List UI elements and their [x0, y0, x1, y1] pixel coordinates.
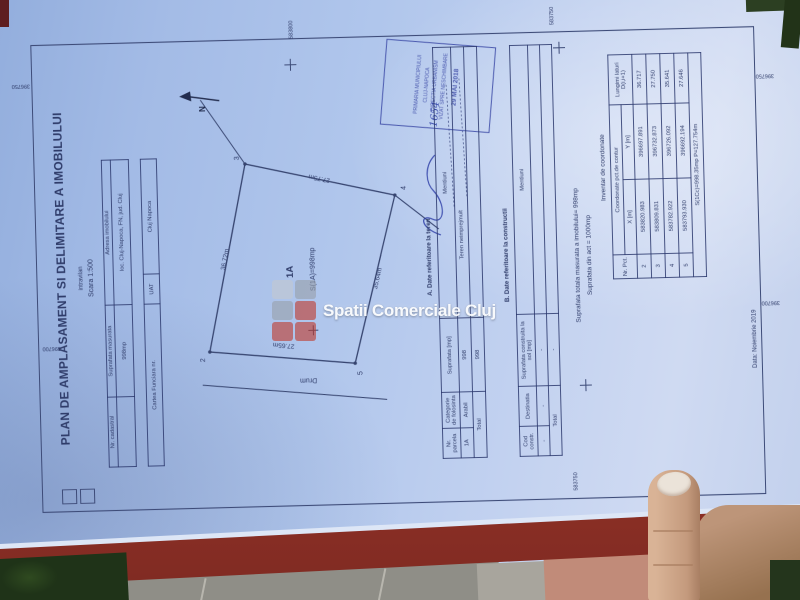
table-cell: Lungimi laturi D(i,i+1) [608, 54, 633, 105]
table-cell: 35.641 [660, 53, 675, 103]
table-cell: Destinatia [518, 386, 537, 426]
parcel-id-label: 1A [285, 266, 296, 278]
logo-square [272, 280, 293, 299]
table-cell: Cluj Napoca [140, 159, 159, 274]
table-cell: Suprafata construita la sol [mp] [516, 314, 536, 386]
table-cell: UAT [143, 274, 160, 304]
finger-crease [653, 564, 693, 566]
stamp-line: PRIMARIA MUNICIPIULUI [413, 55, 424, 115]
road-label: Drum [300, 375, 317, 383]
coordinates-table: Nr. Pct. Coordonate pct.de contur Lungim… [607, 52, 707, 279]
table-cell: 2 [637, 254, 652, 278]
table-cell: Total [548, 385, 562, 455]
vertex-label: 2 [200, 358, 208, 362]
grid-label: 583750 [549, 7, 556, 26]
north-arrow-icon [179, 91, 219, 102]
watermark-logo-icon [272, 280, 316, 341]
table-cell: - [537, 426, 550, 456]
table-cell: 3 [651, 254, 666, 278]
vertex-label: 3 [234, 156, 242, 160]
table-cell: - [536, 386, 549, 426]
table-cell: Categorie de folosinta [442, 392, 461, 428]
table-cell: loc. Cluj-Napoca, FN, jud. Cluj [110, 160, 132, 305]
vertex-point [353, 361, 356, 364]
logo-square [295, 322, 316, 341]
grid-label: 396700 [42, 345, 61, 352]
table-cell: Nr. parcela [442, 428, 461, 458]
title-subtext: intravilan [78, 266, 85, 290]
vertex-point [208, 350, 211, 353]
foliage [781, 0, 800, 49]
table-cell: - [546, 313, 560, 385]
pavement-joint [195, 578, 206, 600]
legend-box [80, 489, 94, 503]
finger-crease [653, 530, 693, 532]
north-label: N [199, 106, 208, 112]
table-cell: Nr. Pct. [613, 254, 638, 279]
photo-of-cadastral-plan: PLAN DE AMPLASAMENT SI DELIMITARE A IMOB… [0, 0, 800, 600]
watermark: Spatii Comerciale Cluj [272, 280, 496, 341]
scale-label: Scara 1:500 [88, 259, 97, 297]
table-cell: 27.750 [646, 54, 661, 104]
background-shadow [0, 0, 9, 27]
vertex-label: 5 [358, 371, 366, 375]
logo-square [295, 280, 316, 299]
legend-box [62, 490, 76, 504]
logo-square [272, 322, 293, 341]
table-cell: Cod constr. [519, 426, 538, 456]
vertex-label: 4 [401, 186, 409, 190]
road-line [203, 380, 387, 404]
table-cell: 998mp [114, 305, 134, 397]
watermark-text: Spatii Comerciale Cluj [323, 301, 496, 321]
foliage [770, 560, 800, 600]
logo-square [272, 301, 293, 320]
grid-label: 396750 [756, 72, 775, 79]
table-cell: Total [472, 391, 487, 457]
grid-label: 396700 [762, 299, 781, 306]
logo-square [295, 301, 316, 320]
table-cell: Arabil [460, 392, 474, 428]
table-cell [117, 396, 137, 466]
grid-label: 583800 [288, 21, 295, 40]
grid-label: 396750 [12, 83, 31, 90]
pavement-joint [375, 568, 386, 600]
table-cell: 4 [665, 253, 680, 277]
grid-label: 583750 [573, 472, 580, 491]
foliage [0, 552, 129, 600]
table-cell: 36.717 [632, 54, 647, 104]
table-cell: 27.646 [674, 53, 689, 103]
table-cell: 5 [679, 253, 694, 277]
table-cell: 1A [460, 428, 474, 458]
